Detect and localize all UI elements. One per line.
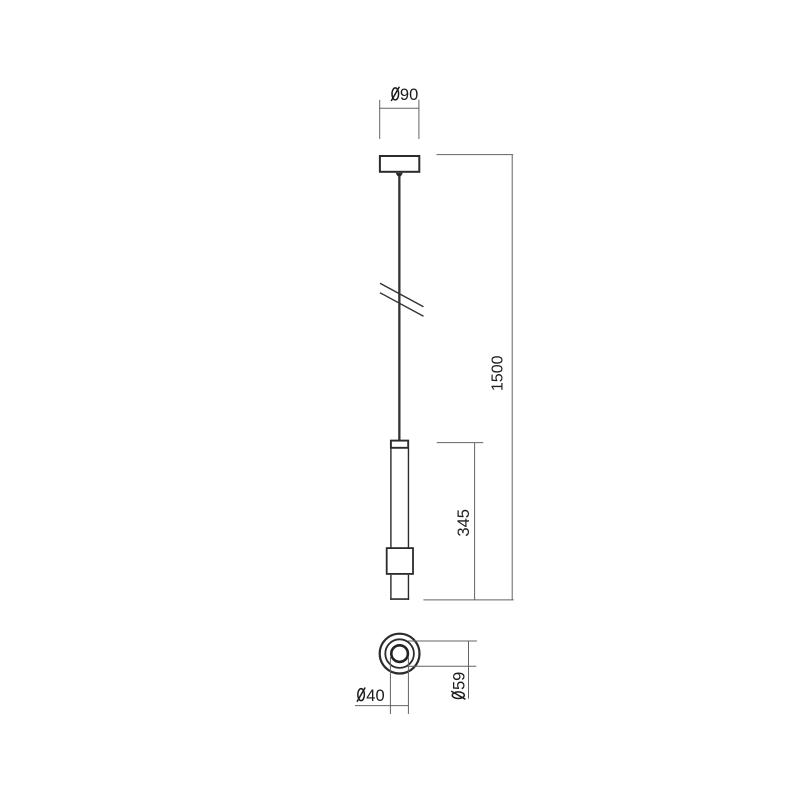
svg-text:345: 345	[455, 509, 473, 537]
svg-text:90: 90	[400, 86, 418, 104]
svg-text:59: 59	[451, 672, 469, 690]
svg-text:1500: 1500	[490, 355, 507, 391]
svg-text:40: 40	[366, 687, 384, 705]
